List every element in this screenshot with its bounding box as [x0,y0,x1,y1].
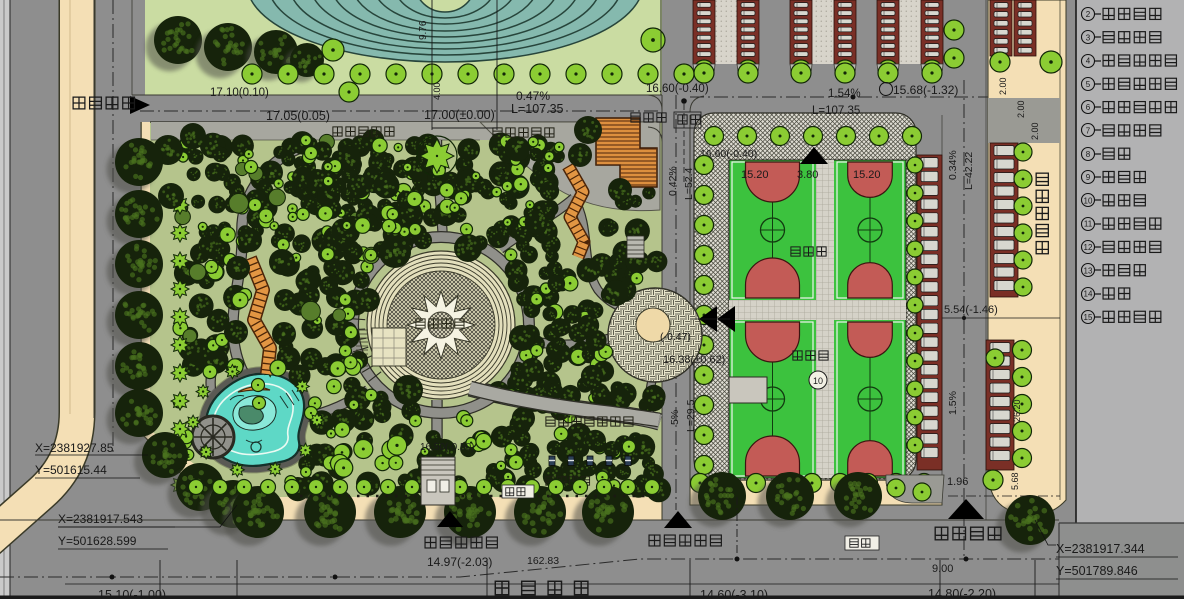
svg-text:2.00: 2.00 [1016,100,1026,118]
svg-text:15.20: 15.20 [853,169,881,181]
svg-text:2.00: 2.00 [998,77,1008,95]
svg-text:10: 10 [813,376,823,386]
svg-text:15.20: 15.20 [741,169,769,181]
svg-text:3.80: 3.80 [797,169,818,181]
svg-text:2.00: 2.00 [1030,122,1040,140]
